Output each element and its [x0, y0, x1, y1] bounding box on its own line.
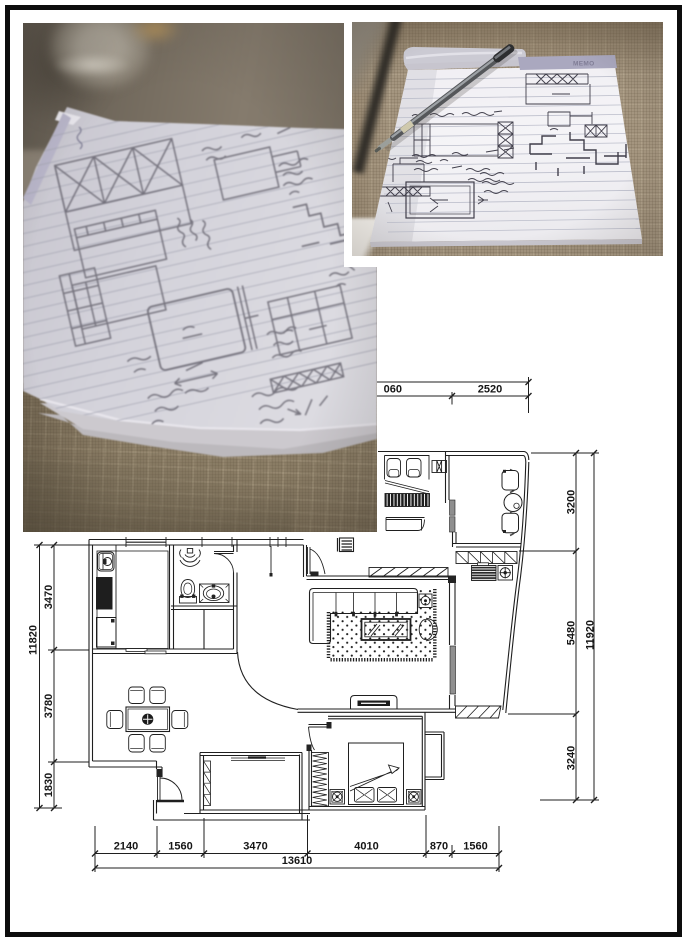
svg-text:13610: 13610: [282, 855, 313, 867]
svg-text:870: 870: [430, 841, 448, 853]
svg-text:4010: 4010: [354, 841, 378, 853]
svg-text:3470: 3470: [43, 585, 55, 609]
svg-text:11920: 11920: [585, 620, 597, 650]
svg-text:1560: 1560: [168, 841, 192, 853]
svg-text:1560: 1560: [463, 841, 487, 853]
svg-text:3470: 3470: [243, 841, 267, 853]
svg-text:5480: 5480: [566, 621, 578, 645]
svg-text:3780: 3780: [43, 694, 55, 718]
svg-text:3240: 3240: [566, 746, 578, 770]
svg-text:1830: 1830: [43, 773, 55, 797]
svg-text:2140: 2140: [114, 841, 138, 853]
svg-text:060: 060: [384, 384, 402, 396]
svg-text:3200: 3200: [566, 490, 578, 514]
svg-text:11820: 11820: [28, 625, 40, 655]
svg-text:2520: 2520: [478, 384, 502, 396]
